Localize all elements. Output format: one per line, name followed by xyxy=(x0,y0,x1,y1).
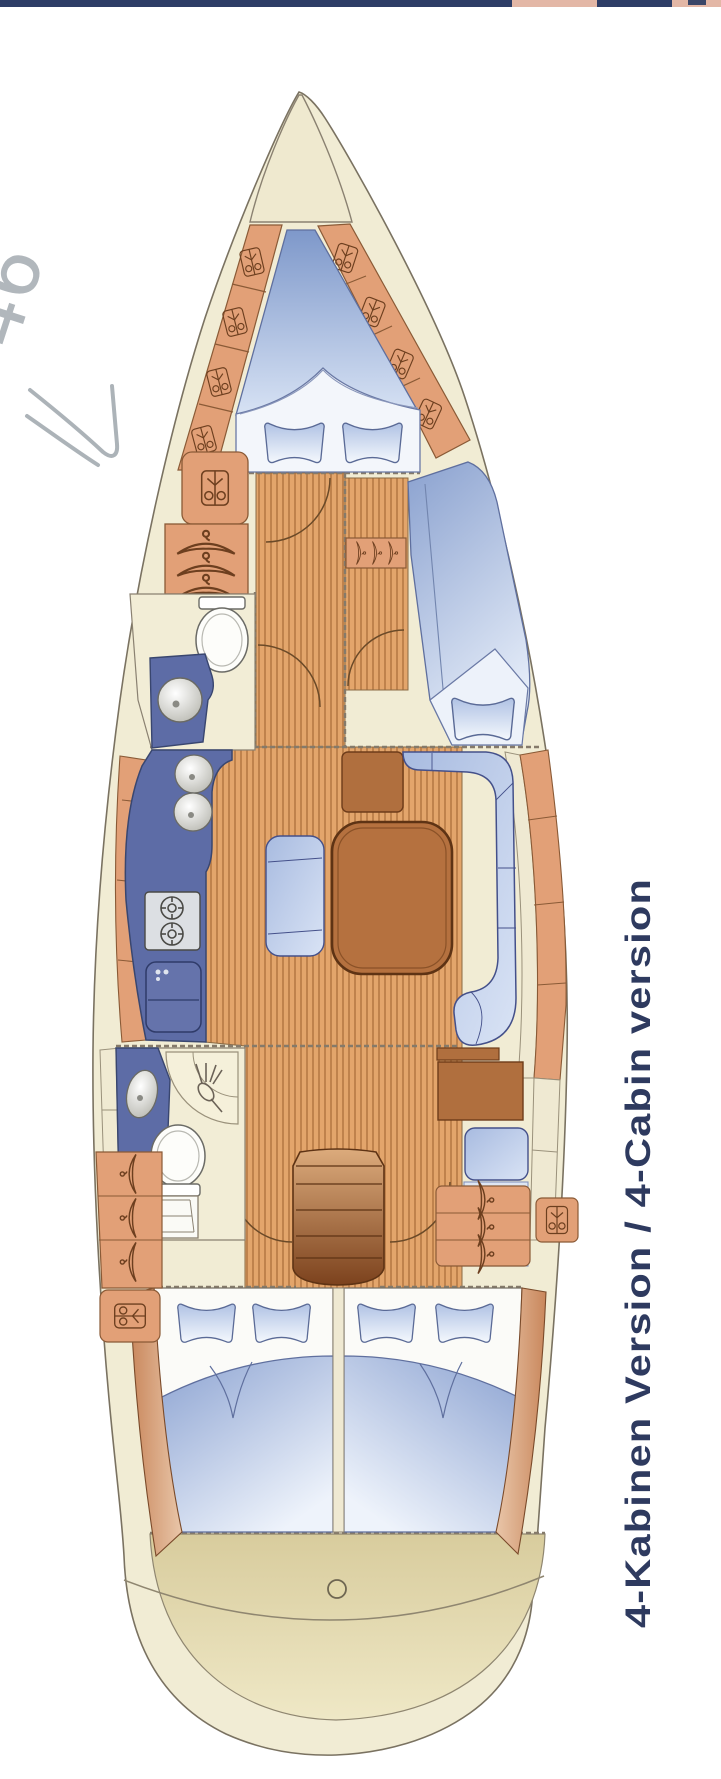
pillow xyxy=(358,1304,416,1342)
deck-fitting-icon xyxy=(328,1580,346,1598)
mid-cabin-seat xyxy=(342,752,403,812)
companionway-steps xyxy=(293,1149,384,1285)
pillow xyxy=(343,423,402,462)
fore-head xyxy=(130,594,255,750)
saloon-table xyxy=(332,822,452,974)
port-wardrobe xyxy=(165,524,248,598)
galley-sink-icon xyxy=(175,755,213,793)
aft-cabin-starboard xyxy=(344,1288,522,1532)
handwritten-note: 46 xyxy=(0,236,117,465)
pillow xyxy=(178,1304,236,1342)
photo-edge-strip xyxy=(0,0,721,7)
aft-cabin-divider-wall xyxy=(333,1288,344,1532)
port-cabinet xyxy=(182,452,248,524)
mid-cabin-closet xyxy=(346,538,406,568)
pillow xyxy=(452,698,515,739)
galley-sink-icon xyxy=(174,793,212,831)
pillow xyxy=(253,1304,311,1342)
chart-table xyxy=(438,1062,523,1120)
saloon-bench xyxy=(266,836,324,956)
washbasin-icon xyxy=(158,678,202,722)
pillow xyxy=(265,423,324,462)
pencil-swoosh xyxy=(27,386,117,465)
brochure-scan-page: 46 xyxy=(0,0,721,1779)
pillow xyxy=(436,1304,494,1342)
fridge-icon xyxy=(146,962,201,1032)
yacht-floorplan-svg: 46 xyxy=(0,0,721,1779)
nav-seat xyxy=(465,1128,528,1180)
stove-icon xyxy=(145,892,200,950)
plan-caption: 4-Kabinen Version / 4-Cabin version xyxy=(619,878,658,1628)
aft-cabin-port xyxy=(154,1288,333,1532)
handwritten-number: 46 xyxy=(0,236,63,358)
port-aft-wardrobe xyxy=(96,1152,162,1342)
